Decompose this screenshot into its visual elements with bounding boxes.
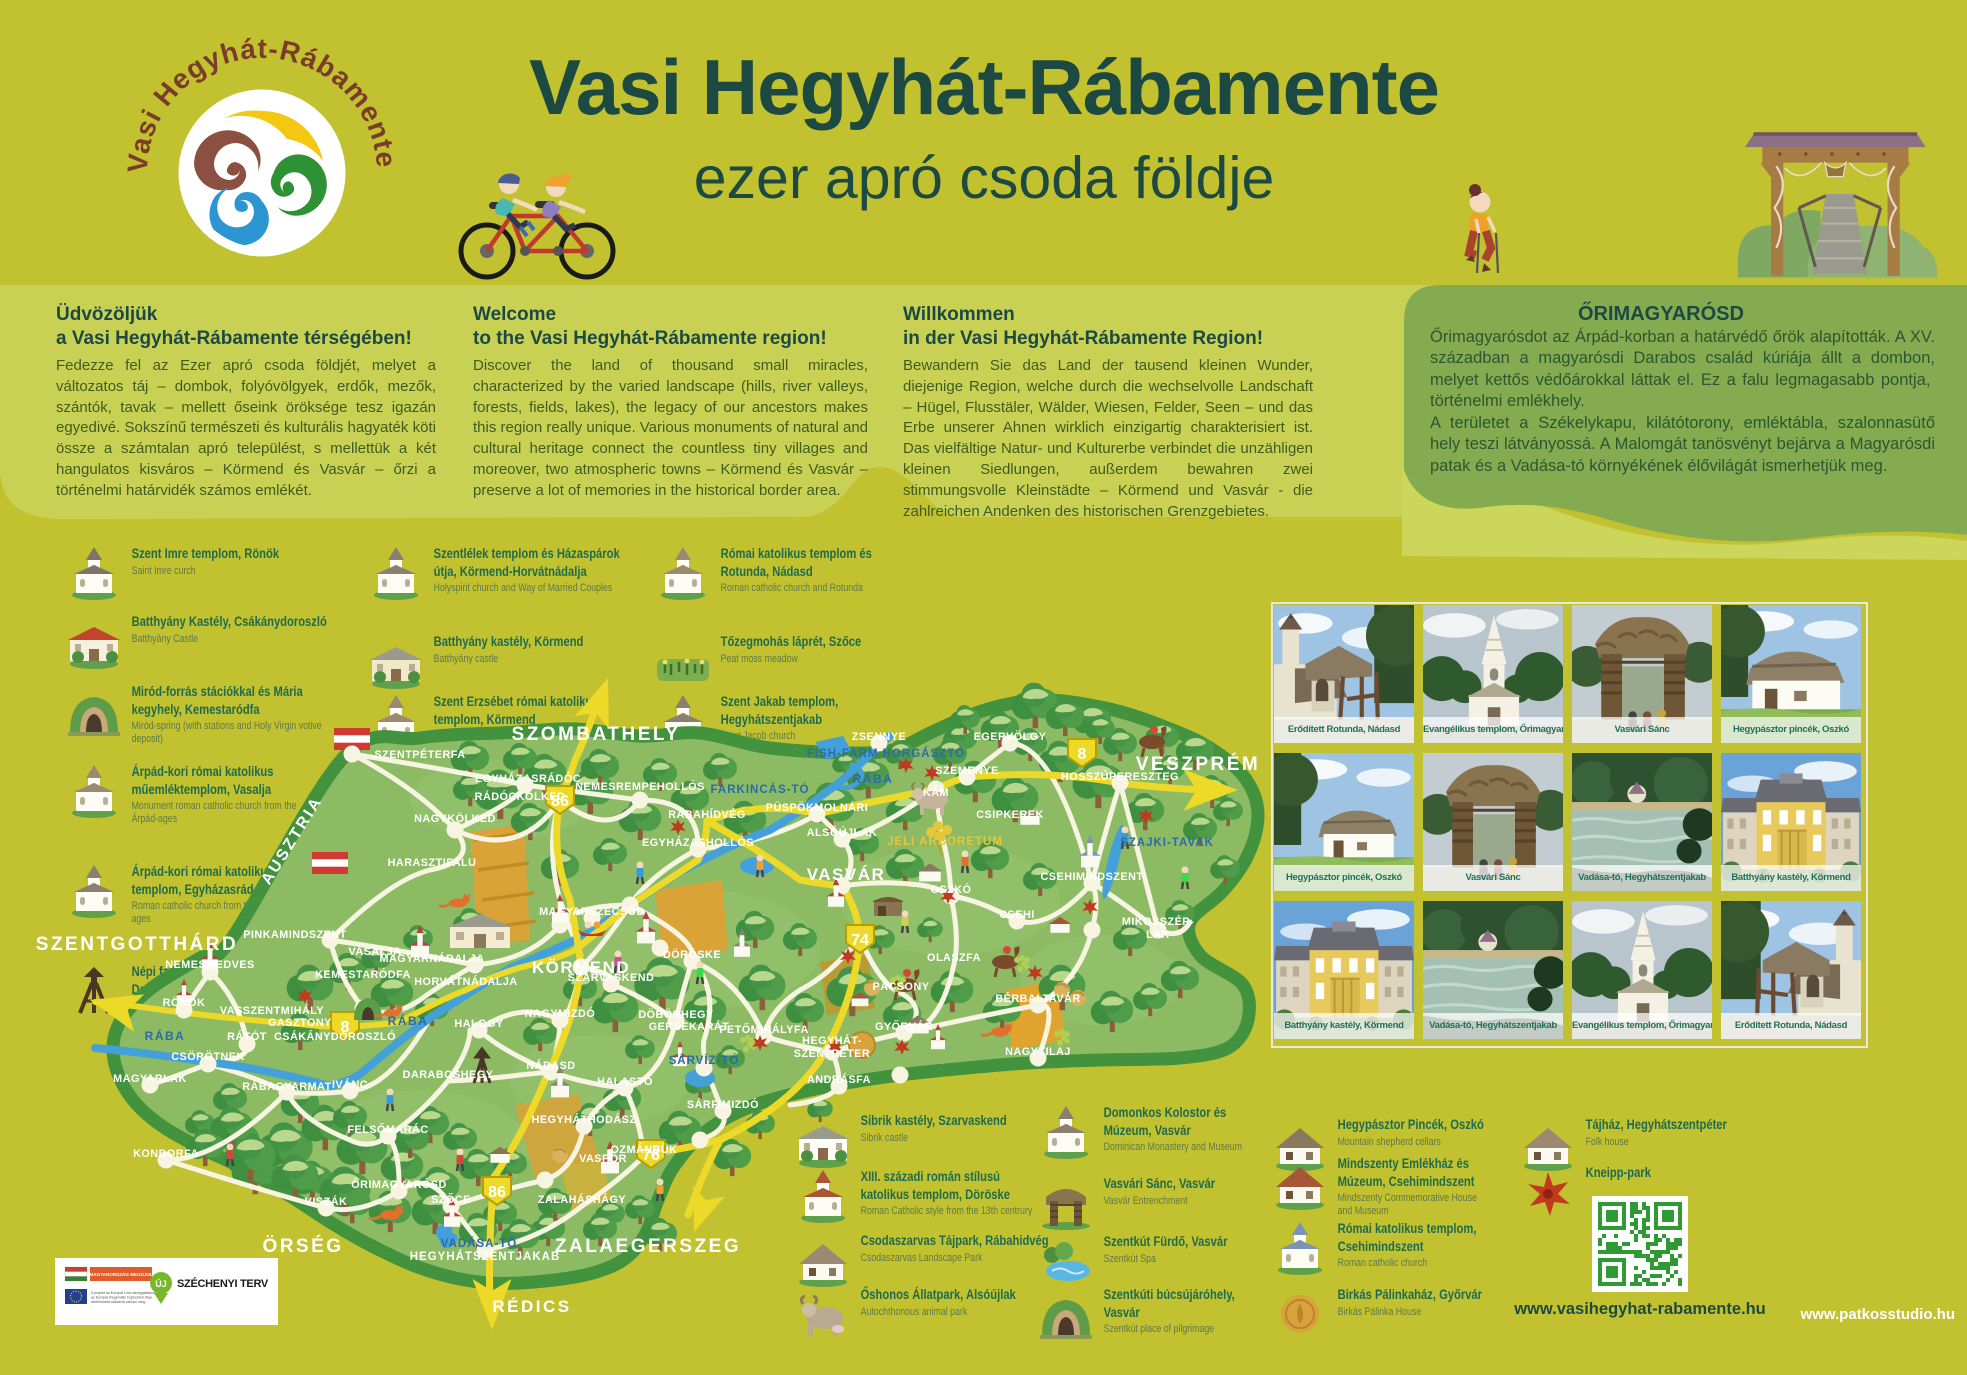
- svg-text:EGYHÁZASRÁDÓC: EGYHÁZASRÁDÓC: [475, 772, 581, 785]
- svg-text:VASPÖR: VASPÖR: [579, 1152, 627, 1165]
- svg-text:CSEHI: CSEHI: [999, 909, 1035, 921]
- svg-text:NAGYTILAJ: NAGYTILAJ: [1005, 1046, 1071, 1058]
- svg-text:IVÁNC: IVÁNC: [332, 1078, 368, 1091]
- svg-text:CSEHIMINDSZENT: CSEHIMINDSZENT: [1041, 871, 1144, 883]
- svg-text:OLASZFA: OLASZFA: [927, 952, 981, 964]
- svg-text:RÁBAGYARMAT: RÁBAGYARMAT: [242, 1080, 331, 1093]
- svg-text:ANDRÁSFA: ANDRÁSFA: [807, 1073, 871, 1086]
- svg-text:VASALJA: VASALJA: [348, 946, 401, 958]
- svg-text:DÖBÖRHEGY: DÖBÖRHEGY: [638, 1008, 714, 1021]
- svg-text:FISH-FARM HORGÁSZTÓ: FISH-FARM HORGÁSZTÓ: [807, 747, 965, 760]
- svg-text:HARASZTIFALU: HARASZTIFALU: [388, 857, 477, 869]
- svg-text:SZENTPÉTERFA: SZENTPÉTERFA: [374, 748, 465, 761]
- svg-text:ZALAEGERSZEG: ZALAEGERSZEG: [555, 1236, 741, 1257]
- svg-text:ZSENNYE: ZSENNYE: [852, 731, 907, 743]
- svg-text:OSZKÓ: OSZKÓ: [931, 883, 972, 896]
- svg-text:74: 74: [851, 932, 869, 949]
- svg-text:VADÁSA-TÓ: VADÁSA-TÓ: [441, 1237, 518, 1250]
- svg-text:ŐRIMAGYARÓSD: ŐRIMAGYARÓSD: [351, 1178, 447, 1191]
- svg-text:SZEMENYE: SZEMENYE: [935, 765, 998, 777]
- svg-text:NEMESMEDVES: NEMESMEDVES: [165, 959, 255, 971]
- svg-text:SZOMBATHELY: SZOMBATHELY: [512, 724, 681, 745]
- svg-text:SZARVASKEND: SZARVASKEND: [568, 972, 655, 984]
- svg-text:RÖNÖK: RÖNÖK: [163, 996, 206, 1009]
- svg-text:RÁDÓCKÖLKED: RÁDÓCKÖLKED: [475, 790, 566, 803]
- svg-text:VASVÁR: VASVÁR: [807, 865, 886, 884]
- svg-text:VISZÁK: VISZÁK: [305, 1195, 348, 1208]
- svg-text:RÁBA: RÁBA: [853, 771, 894, 786]
- svg-text:GYŐRVÁR: GYŐRVÁR: [875, 1020, 933, 1033]
- svg-text:EGERVÖLGY: EGERVÖLGY: [974, 730, 1047, 743]
- svg-text:MAGYARLAK: MAGYARLAK: [113, 1073, 187, 1085]
- svg-text:HALOGY: HALOGY: [454, 1018, 503, 1030]
- svg-text:HALASTÓ: HALASTÓ: [597, 1075, 653, 1088]
- svg-text:KONDORFA: KONDORFA: [133, 1148, 199, 1160]
- svg-text:SZŐCE: SZŐCE: [431, 1193, 471, 1206]
- svg-text:RÉDICS: RÉDICS: [492, 1297, 571, 1316]
- svg-text:SZENTGOTTHÁRD: SZENTGOTTHÁRD: [36, 933, 238, 955]
- svg-text:PETŐMIHÁLYFA: PETŐMIHÁLYFA: [719, 1023, 809, 1036]
- svg-text:NAGYMIZDÓ: NAGYMIZDÓ: [525, 1007, 595, 1020]
- svg-text:FARKINCÁS-TÓ: FARKINCÁS-TÓ: [711, 783, 810, 796]
- svg-text:RÁBA: RÁBA: [388, 1013, 429, 1028]
- svg-text:LAK: LAK: [1146, 929, 1170, 941]
- svg-text:86: 86: [488, 1184, 506, 1201]
- svg-text:NEMESREMPEHOLLÓS: NEMESREMPEHOLLÓS: [575, 780, 705, 793]
- svg-text:CSIPKEREK: CSIPKEREK: [976, 809, 1044, 821]
- svg-text:ALSÓÚJLAK: ALSÓÚJLAK: [807, 826, 877, 839]
- svg-text:RÁTÓT: RÁTÓT: [227, 1030, 267, 1043]
- svg-text:SÁRFIMIZDÓ: SÁRFIMIZDÓ: [687, 1098, 759, 1111]
- svg-text:SÁRVÍZ-TÓ: SÁRVÍZ-TÓ: [669, 1054, 740, 1067]
- svg-text:KÁM: KÁM: [923, 786, 949, 799]
- svg-text:SZENTPÉTER: SZENTPÉTER: [794, 1047, 870, 1060]
- svg-text:MIKOSSZÉP-: MIKOSSZÉP-: [1122, 915, 1194, 928]
- svg-text:NÁDASD: NÁDASD: [526, 1059, 575, 1072]
- svg-text:FELSŐMARÁC: FELSŐMARÁC: [347, 1123, 428, 1136]
- svg-text:HEGYHÁTHODÁSZ: HEGYHÁTHODÁSZ: [532, 1113, 637, 1126]
- svg-text:JELI ARBORETUM: JELI ARBORETUM: [887, 836, 1003, 848]
- svg-text:HEGYHÁTSZENTJAKAB: HEGYHÁTSZENTJAKAB: [410, 1250, 561, 1263]
- svg-text:HORVÁTNÁDALJA: HORVÁTNÁDALJA: [414, 975, 517, 988]
- svg-text:GASZTONY: GASZTONY: [268, 1017, 332, 1029]
- svg-text:ZALAHÁSHÁGY: ZALAHÁSHÁGY: [538, 1193, 627, 1206]
- svg-text:RÁBA: RÁBA: [145, 1028, 186, 1043]
- svg-text:NAGYKÖLKED: NAGYKÖLKED: [414, 812, 496, 825]
- svg-text:CSÁKÁNYDOROSZLÓ: CSÁKÁNYDOROSZLÓ: [274, 1030, 396, 1043]
- svg-text:PINKAMINDSZENT: PINKAMINDSZENT: [243, 929, 347, 941]
- svg-text:SZAJKI-TAVAK: SZAJKI-TAVAK: [1120, 837, 1214, 849]
- svg-text:VASSZENTMIHÁLY: VASSZENTMIHÁLY: [220, 1004, 324, 1017]
- svg-text:DÖRÖSKE: DÖRÖSKE: [663, 948, 721, 961]
- svg-text:PÜSPÖKMOLNÁRI: PÜSPÖKMOLNÁRI: [766, 801, 868, 814]
- svg-text:HOSSZÚPERESZTEG: HOSSZÚPERESZTEG: [1061, 770, 1179, 783]
- svg-text:KEMESTARÓDFA: KEMESTARÓDFA: [315, 968, 411, 981]
- svg-text:GERSEKARÁT: GERSEKARÁT: [649, 1020, 730, 1033]
- svg-text:CSÖRÖTNEK: CSÖRÖTNEK: [171, 1050, 244, 1063]
- svg-text:8: 8: [1078, 746, 1087, 763]
- svg-text:HEGYHÁT-: HEGYHÁT-: [802, 1034, 862, 1047]
- svg-text:PÁCSONY: PÁCSONY: [873, 980, 930, 993]
- svg-text:DARABOSHEGY: DARABOSHEGY: [403, 1069, 494, 1081]
- svg-text:RÁBAHÍDVÉG: RÁBAHÍDVÉG: [668, 808, 746, 821]
- svg-text:EGYHÁZASHOLLÓS: EGYHÁZASHOLLÓS: [642, 836, 754, 849]
- svg-text:BÉRBALTAVÁR: BÉRBALTAVÁR: [995, 992, 1080, 1005]
- svg-text:MAGYARSZECSŐD: MAGYARSZECSŐD: [539, 905, 645, 918]
- svg-text:ÖRSÉG: ÖRSÉG: [262, 1235, 343, 1257]
